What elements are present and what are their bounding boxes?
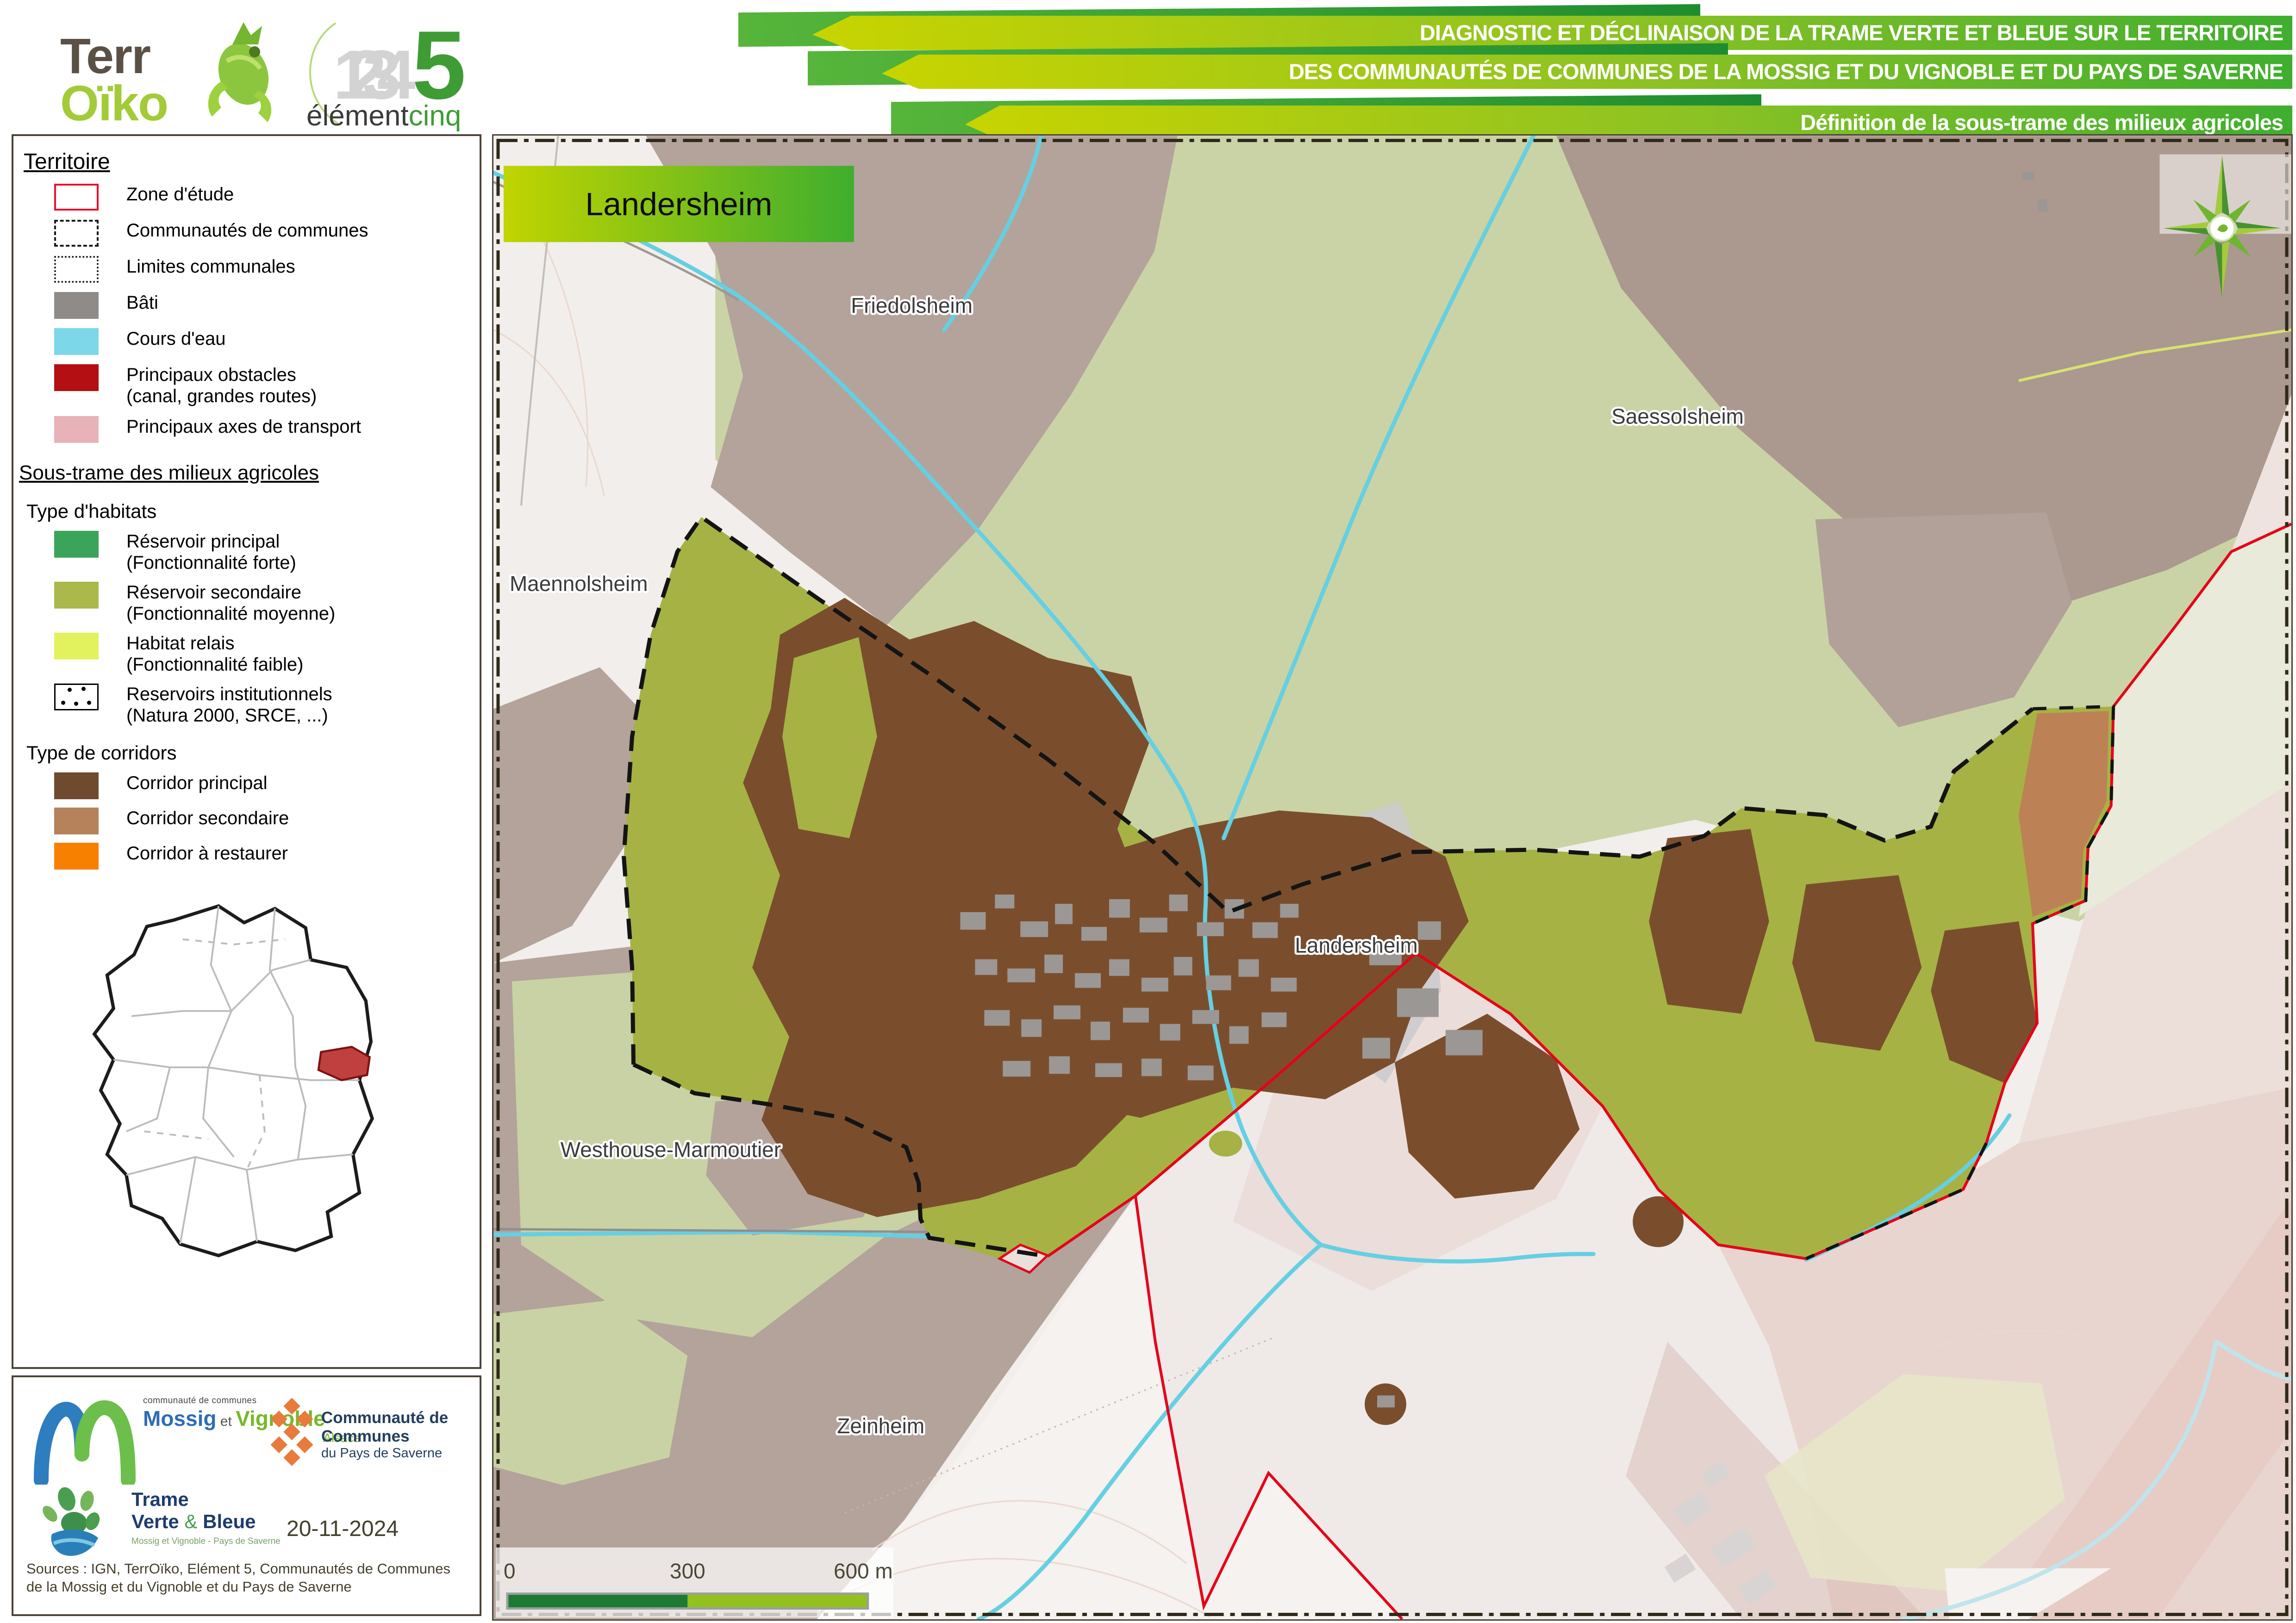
footer-panel: communauté de communes Mossig et Vignobl…	[12, 1375, 481, 1616]
legend-label-line2: (Natura 2000, SRCE, ...)	[126, 705, 328, 726]
label-landersheim: Landersheim	[1295, 933, 1417, 958]
limites-swatch	[54, 256, 99, 283]
legend-item-obstacles: Principaux obstacles (canal, grandes rou…	[54, 364, 480, 407]
saverne-line1: Communauté de Communes	[321, 1409, 474, 1446]
legend-item-corridor-principal: Corridor principal	[54, 772, 480, 799]
reservoirs-institutionnels-swatch	[54, 684, 99, 710]
label-zeinheim: Zeinheim	[837, 1414, 924, 1438]
communautes-swatch	[54, 220, 99, 247]
legend-soustrame-section: Sous-trame des milieux agricoles Type d'…	[13, 461, 480, 870]
map-title-box: Landersheim	[504, 166, 854, 242]
label-maennolsheim: Maennolsheim	[510, 572, 648, 596]
legend-label-line2: (Fonctionnalité moyenne)	[126, 603, 335, 624]
legend-item-reservoir-secondaire: Réservoir secondaire(Fonctionnalité moye…	[54, 582, 480, 624]
map-title-text: Landersheim	[585, 186, 772, 222]
element5-wordmark: élémentcinq	[306, 99, 461, 132]
mossig-name1: Mossig	[143, 1406, 216, 1430]
legend-item-communautes: Communautés de communes	[54, 220, 480, 247]
title-bar-2-text: DES COMMUNAUTÉS DE COMMUNES DE LA MOSSIG…	[882, 55, 2292, 89]
tvb-logo-icon	[39, 1486, 122, 1572]
legend-habitats-subheading: Type d'habitats	[26, 500, 480, 522]
map-canvas: Friedolsheim Saessolsheim Maennolsheim L…	[493, 136, 2291, 1619]
legend-label: Reservoirs institutionnels(Natura 2000, …	[126, 684, 332, 726]
tvb-verte: Verte	[131, 1511, 184, 1532]
legend-label: Zone d'étude	[126, 184, 234, 205]
corridor-restaurer-swatch	[54, 843, 99, 870]
legend-corridors-subheading: Type de corridors	[26, 742, 480, 764]
scale-tick-300: 300	[670, 1559, 705, 1583]
label-westhouse-marmoutier: Westhouse-Marmoutier	[561, 1138, 781, 1162]
cours-eau-swatch	[54, 328, 99, 355]
obstacles-swatch	[54, 364, 99, 391]
legend-item-cours-eau: Cours d'eau	[54, 328, 480, 355]
legend-label: Réservoir secondaire(Fonctionnalité moye…	[126, 582, 335, 624]
sources-text: Sources : IGN, TerrOïko, Elément 5, Comm…	[26, 1560, 457, 1596]
legend-label: Corridor secondaire	[126, 808, 289, 829]
element5-logo: 1234 5 élémentcinq	[292, 14, 532, 130]
mossig-logo	[32, 1397, 138, 1487]
map-date: 20-11-2024	[287, 1516, 399, 1542]
label-saessolsheim: Saessolsheim	[1611, 404, 1744, 429]
saverne-logo-text: Communauté de Communes du Pays de Savern…	[321, 1409, 474, 1461]
inset-locator-map	[43, 888, 450, 1275]
scale-bar: 0 300 600 m	[496, 1548, 893, 1618]
legend-label: Bâti	[126, 292, 158, 313]
axes-transport-swatch	[54, 416, 99, 443]
legend-label: Corridor principal	[126, 772, 268, 794]
legend-item-corridor-secondaire: Corridor secondaire	[54, 808, 480, 834]
saverne-logo	[266, 1398, 319, 1474]
legend-label: Principaux obstacles (canal, grandes rou…	[126, 364, 317, 407]
legend-label: Limites communales	[126, 256, 295, 277]
element5-word2: cinq	[409, 100, 462, 132]
legend-item-reservoir-principal: Réservoir principal(Fonctionnalité forte…	[54, 531, 480, 573]
inset-territory-outline	[94, 906, 372, 1256]
legend-label-line1: Reservoirs institutionnels	[126, 684, 332, 704]
legend-territoire-section: Territoire Zone d'étude Communautés de c…	[13, 149, 480, 443]
legend-item-zone-etude: Zone d'étude	[54, 184, 480, 211]
legend-label: Cours d'eau	[126, 328, 225, 349]
legend-label-line2: (canal, grandes routes)	[126, 386, 317, 406]
legend-item-bati: Bâti	[54, 292, 480, 319]
legend-label-line1: Réservoir secondaire	[126, 582, 301, 603]
tvb-amp: &	[184, 1511, 197, 1532]
scale-tick-600: 600 m	[834, 1559, 893, 1583]
legend-item-axes-transport: Principaux axes de transport	[54, 416, 480, 443]
terroiko-logo: Terr Oïko	[37, 8, 296, 129]
legend-soustrame-heading: Sous-trame des milieux agricoles	[19, 461, 480, 485]
legend-item-reservoirs-institutionnels: Reservoirs institutionnels(Natura 2000, …	[54, 684, 480, 726]
legend-territoire-heading: Territoire	[24, 149, 480, 174]
legend-label-line2: (Fonctionnalité faible)	[126, 654, 303, 675]
page: Terr Oïko 1234 5 élémentcinq	[0, 0, 2296, 1623]
scale-tick-0: 0	[504, 1559, 516, 1583]
reservoir-secondaire-swatch	[54, 582, 99, 609]
label-friedolsheim: Friedolsheim	[851, 293, 973, 317]
reservoir-principal-swatch	[54, 531, 99, 558]
saverne-line2: du Pays de Saverne	[321, 1446, 474, 1461]
habitat-relais-swatch	[54, 633, 99, 659]
corridor-principal-swatch	[54, 772, 99, 799]
legend-label: Habitat relais(Fonctionnalité faible)	[126, 633, 303, 675]
legend-label-line2: (Fonctionnalité forte)	[126, 553, 296, 573]
legend-label: Principaux axes de transport	[126, 416, 361, 437]
legend-panel: Territoire Zone d'étude Communautés de c…	[12, 134, 481, 1369]
legend-label-line1: Réservoir principal	[126, 531, 280, 552]
legend-label: Corridor à restaurer	[126, 843, 288, 864]
terroiko-text-oiko: Oïko	[60, 74, 168, 132]
legend-item-limites: Limites communales	[54, 256, 480, 283]
legend-label: Réservoir principal(Fonctionnalité forte…	[126, 531, 296, 573]
legend-label: Communautés de communes	[126, 220, 368, 241]
mossig-et: et	[216, 1414, 236, 1429]
legend-item-habitat-relais: Habitat relais(Fonctionnalité faible)	[54, 633, 480, 675]
corridor-secondaire-swatch	[54, 808, 99, 834]
map-panel: Friedolsheim Saessolsheim Maennolsheim L…	[492, 134, 2293, 1621]
mossig-logo-icon	[32, 1397, 138, 1485]
frog-icon	[190, 17, 296, 130]
legend-item-corridor-restaurer: Corridor à restaurer	[54, 843, 480, 870]
saverne-logo-icon	[266, 1398, 319, 1472]
legend-label-line1: Habitat relais	[126, 633, 234, 653]
title-bar-2: DES COMMUNAUTÉS DE COMMUNES DE LA MOSSIG…	[882, 55, 2292, 89]
tvb-bleue: Bleue	[197, 1511, 256, 1532]
tvb-line1: Trame	[131, 1488, 326, 1511]
legend-label-line1: Principaux obstacles	[126, 365, 296, 385]
element5-word1: élément	[306, 100, 409, 132]
bati-swatch	[54, 292, 99, 319]
mossig-top-line: communauté de communes	[143, 1396, 361, 1406]
zone-etude-swatch	[54, 184, 99, 211]
